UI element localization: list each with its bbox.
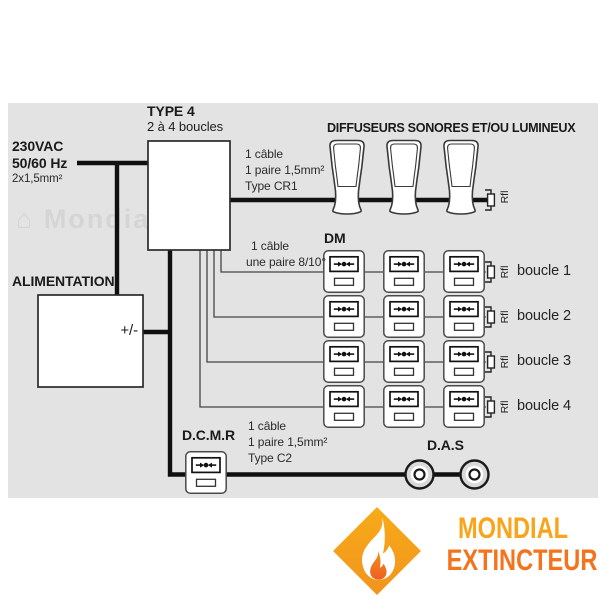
cr1-cable-line2: 1 paire 1,5mm² bbox=[245, 163, 324, 177]
rfl-label: Rfl bbox=[498, 184, 512, 210]
rfl-label: Rfl bbox=[498, 394, 512, 420]
manual-call-point-icon bbox=[444, 251, 484, 292]
type4-title: TYPE 4 bbox=[147, 103, 195, 119]
alimentation-label: ALIMENTATION bbox=[12, 273, 115, 289]
alimentation-box bbox=[38, 295, 143, 387]
logo-line2: EXTINCTEUR bbox=[447, 545, 580, 577]
manual-call-point-icon bbox=[384, 251, 424, 292]
sounder-icon bbox=[330, 141, 364, 215]
dm-cable-line1: 1 câble bbox=[251, 239, 289, 253]
c2-cable-line1: 1 câble bbox=[248, 419, 286, 433]
dm-label: DM bbox=[324, 230, 346, 246]
logo-line1: MONDIAL bbox=[447, 513, 580, 545]
boucle-2-label: boucle 2 bbox=[517, 308, 571, 324]
resistor-icon bbox=[485, 397, 494, 417]
manual-call-point-icon bbox=[324, 251, 364, 292]
resistor-icon bbox=[485, 307, 494, 327]
manual-call-point-icon bbox=[324, 296, 364, 337]
dm-grid bbox=[324, 251, 484, 427]
flame-logo-icon bbox=[331, 505, 423, 597]
diffuseurs-header: DIFFUSEURS SONORES ET/OU LUMINEUX bbox=[327, 121, 575, 135]
das-actuator-icon bbox=[461, 461, 489, 489]
dm-cable-line2: une paire 8/10° bbox=[246, 255, 326, 269]
manual-call-point-icon bbox=[444, 386, 484, 427]
manual-call-point-icon bbox=[324, 386, 364, 427]
dcmr-call-point-icon bbox=[186, 452, 226, 493]
rfl-label: Rfl bbox=[498, 259, 512, 285]
manual-call-point-icon bbox=[324, 341, 364, 382]
resistor-icon bbox=[485, 352, 494, 372]
boucle-4-label: boucle 4 bbox=[517, 398, 571, 414]
manual-call-point-icon bbox=[444, 341, 484, 382]
rfl-label: Rfl bbox=[498, 349, 512, 375]
power-frequency-label: 50/60 Hz bbox=[12, 155, 67, 171]
das-actuator-icon bbox=[406, 461, 434, 489]
cr1-cable-line1: 1 câble bbox=[245, 147, 283, 161]
c2-cable-line3: Type C2 bbox=[248, 451, 292, 465]
power-voltage-label: 230VAC bbox=[12, 138, 63, 154]
boucle-3-label: boucle 3 bbox=[517, 353, 571, 369]
das-label: D.A.S bbox=[427, 437, 464, 453]
c2-cable-line2: 1 paire 1,5mm² bbox=[248, 435, 327, 449]
wiring-diagram bbox=[0, 0, 600, 600]
manual-call-point-icon bbox=[444, 296, 484, 337]
resistor-icon bbox=[485, 262, 494, 282]
sounder-icon bbox=[387, 141, 421, 215]
power-cable-label: 2x1,5mm² bbox=[12, 173, 62, 186]
type4-subtitle: 2 à 4 boucles bbox=[147, 119, 223, 134]
manual-call-point-icon bbox=[384, 386, 424, 427]
logo-wordmark: MONDIAL EXTINCTEUR bbox=[447, 513, 580, 577]
dcmr-label: D.C.M.R bbox=[182, 427, 235, 443]
boucle-1-label: boucle 1 bbox=[517, 263, 571, 279]
type4-unit-box bbox=[148, 141, 230, 250]
manual-call-point-icon bbox=[384, 341, 424, 382]
manual-call-point-icon bbox=[384, 296, 424, 337]
cr1-cable-line3: Type CR1 bbox=[245, 179, 298, 193]
screenshot-root: ⌂ Mondial bbox=[0, 0, 600, 600]
psu-terminal-label: +/- bbox=[104, 322, 138, 339]
sounder-icon bbox=[444, 141, 478, 215]
rfl-label: Rfl bbox=[498, 304, 512, 330]
